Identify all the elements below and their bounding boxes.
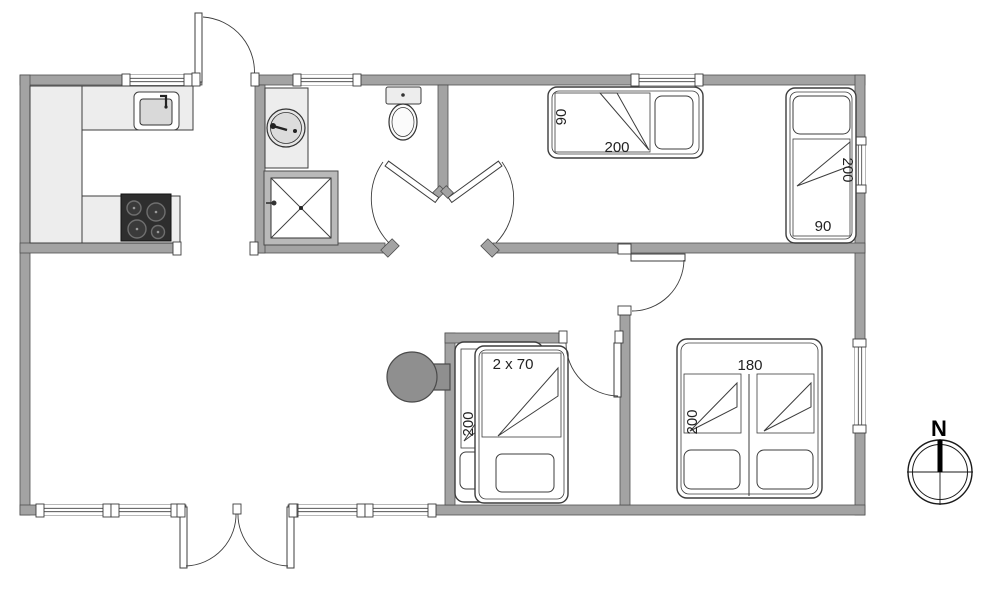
- bathroom-vanity: [265, 88, 308, 168]
- window-cap: [122, 74, 130, 86]
- terrace-double-door: [180, 507, 294, 568]
- wood-stove: [387, 352, 450, 402]
- compass: N: [907, 416, 973, 505]
- bunk-room-door: [566, 343, 621, 397]
- bed1-width-label: 90: [553, 109, 570, 126]
- bed2-width-label: 90: [815, 218, 832, 235]
- bed2-length-label: 200: [839, 157, 856, 182]
- shower: [264, 171, 338, 245]
- bathroom: [264, 87, 421, 245]
- bed1-length-label: 200: [604, 139, 629, 156]
- kitchen-sink: [134, 92, 179, 130]
- bed-single-right: 200 90: [786, 88, 856, 243]
- pillow: [757, 450, 813, 489]
- pillow: [793, 96, 850, 134]
- pillow: [684, 450, 740, 489]
- toilet: [386, 87, 421, 140]
- bunk-length-label: 200: [460, 411, 477, 436]
- double-bedroom: 180 200: [677, 339, 822, 498]
- bedroom-1: 90 200 200 90: [548, 87, 856, 243]
- pillow: [655, 96, 693, 149]
- double-width-label: 180: [737, 357, 762, 374]
- bed-single-top: 90 200: [548, 87, 703, 158]
- compass-needle: [938, 440, 943, 472]
- bunk-size-label: 2 x 70: [493, 356, 534, 373]
- bunk-beds: 2 x 70 200: [455, 342, 568, 503]
- compass-north-label: N: [931, 416, 947, 441]
- double-length-label: 200: [684, 409, 701, 434]
- entry-door-top: [195, 13, 254, 82]
- kitchen: [30, 86, 193, 243]
- pillow: [496, 454, 554, 492]
- cooktop: [121, 194, 171, 241]
- double-bed: 180 200: [677, 339, 822, 498]
- bedroom1-door: [448, 161, 513, 243]
- bedroom2-door: [631, 254, 685, 311]
- floor-plan: 90 200 200 90 2 x 70 200: [0, 0, 1000, 599]
- floor-plan-page: 90 200 200 90 2 x 70 200: [0, 0, 1000, 599]
- bathroom-door: [371, 161, 438, 243]
- bunk-room: 2 x 70 200: [455, 342, 568, 503]
